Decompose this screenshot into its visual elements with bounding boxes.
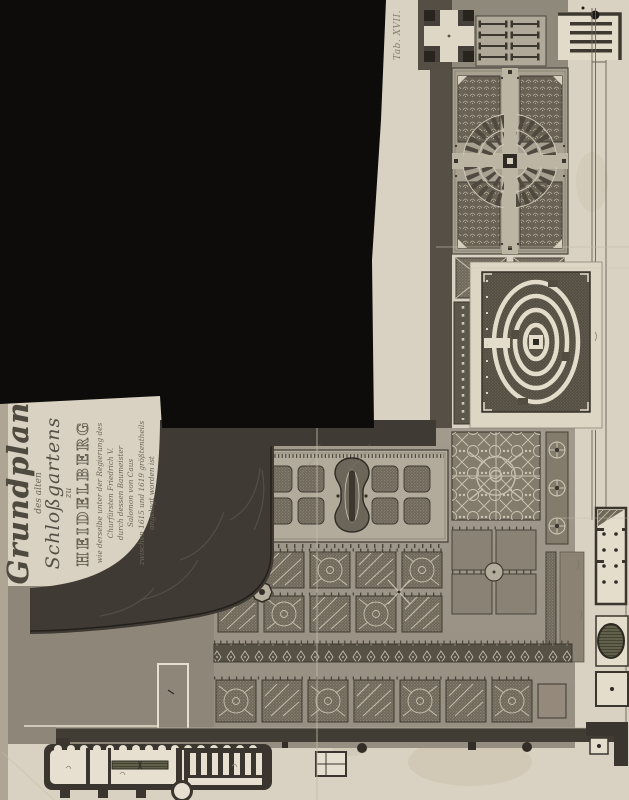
center-parterre-panel bbox=[256, 450, 448, 546]
flower-border-band bbox=[454, 302, 472, 424]
round-tower bbox=[522, 742, 532, 752]
oval-pool bbox=[596, 616, 628, 666]
building-knob bbox=[98, 790, 108, 798]
dedication-line: angelegt worden ist bbox=[147, 396, 157, 590]
building-knob bbox=[60, 790, 70, 798]
ornament-border-band bbox=[214, 642, 572, 662]
dedication-line: zwischen 1615 und 1619 größtentheils bbox=[137, 396, 147, 590]
circular-parterre-panel bbox=[452, 68, 568, 254]
round-tower bbox=[357, 743, 367, 753]
title-cartouche: Grundplan des alten Schloßgartens zu HEI… bbox=[4, 396, 162, 590]
orangery-bed-block bbox=[476, 16, 546, 66]
cross-pavilion bbox=[424, 10, 474, 62]
dedication-line: wie derselbe unter der Regierung des bbox=[95, 396, 105, 590]
gatehouse-footprint bbox=[316, 752, 346, 776]
wall-knob bbox=[282, 742, 288, 748]
title-sub2: Schloßgartens bbox=[44, 396, 64, 590]
maze-entrance bbox=[484, 338, 510, 348]
title-main: Grundplan bbox=[4, 396, 34, 590]
oval-maze-panel bbox=[470, 262, 602, 428]
corner-terrace-wall bbox=[558, 12, 622, 60]
right-gallery bbox=[596, 508, 626, 604]
hedge-strip bbox=[546, 552, 556, 644]
niched-gallery bbox=[184, 748, 266, 786]
roundel-border-band bbox=[546, 432, 568, 544]
ink-speck bbox=[582, 7, 585, 10]
lower-room bbox=[596, 672, 628, 706]
title-city: HEIDELBERG bbox=[74, 396, 92, 590]
title-dedication: wie derselbe unter der Regierung des Chu… bbox=[95, 396, 157, 590]
bottom-bed-row bbox=[214, 678, 566, 722]
plate-label: Tab. XVII. bbox=[393, 6, 403, 60]
dedication-line: Salomon von Caus bbox=[126, 396, 136, 590]
knot-parterre bbox=[452, 432, 540, 520]
grotto-apse bbox=[173, 782, 192, 800]
dedication-line: Churfürsten Friedrich V. bbox=[106, 396, 116, 590]
grotto-pool bbox=[112, 761, 168, 769]
building-knob bbox=[136, 790, 146, 798]
dedication-line: durch dessen Baumeister bbox=[116, 396, 126, 590]
wall-knob bbox=[468, 742, 476, 750]
black-redaction-region bbox=[0, 0, 386, 428]
plate-label-text: Tab. XVII. bbox=[393, 10, 403, 60]
scanned-plate: Tab. XVII. Grundplan des alten Schloßgar… bbox=[0, 0, 629, 800]
title-zu: zu bbox=[64, 396, 74, 590]
plain-bed bbox=[538, 684, 566, 718]
